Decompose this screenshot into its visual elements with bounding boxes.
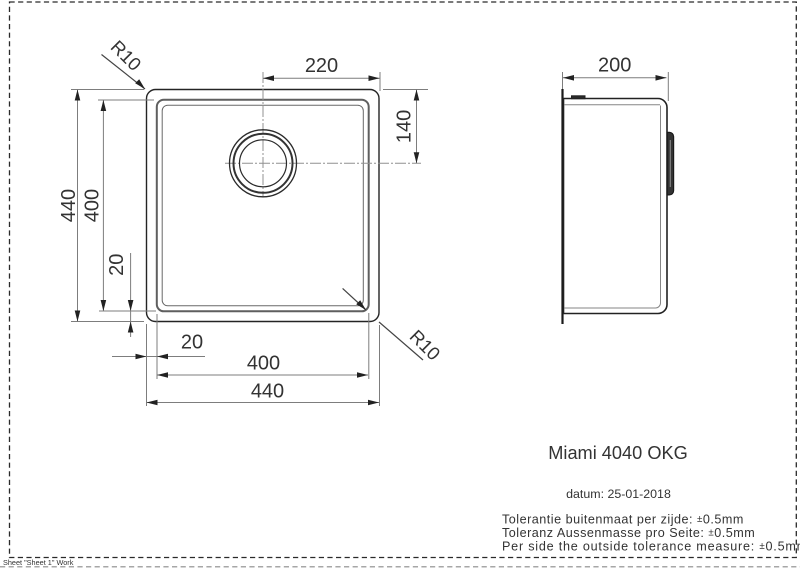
svg-text:400: 400 bbox=[82, 189, 104, 222]
svg-text:20: 20 bbox=[181, 332, 203, 354]
svg-text:440: 440 bbox=[251, 381, 284, 403]
svg-text:220: 220 bbox=[305, 55, 338, 77]
svg-text:400: 400 bbox=[247, 353, 280, 375]
svg-text:Miami 4040 OKG: Miami 4040 OKG bbox=[548, 443, 688, 463]
svg-text:440: 440 bbox=[58, 189, 80, 222]
svg-text:datum: 25-01-2018: datum: 25-01-2018 bbox=[566, 487, 671, 501]
svg-text:Toleranz Aussenmasse pro Seite: Toleranz Aussenmasse pro Seite: ±0.5mm bbox=[502, 526, 755, 540]
svg-text:20: 20 bbox=[106, 254, 128, 276]
svg-text:Tolerantie buitenmaat per zijd: Tolerantie buitenmaat per zijde: ±0.5mm bbox=[502, 513, 744, 527]
svg-text:140: 140 bbox=[394, 110, 416, 143]
svg-text:Sheet "Sheet 1" Work: Sheet "Sheet 1" Work bbox=[3, 558, 74, 567]
svg-text:200: 200 bbox=[598, 55, 631, 77]
svg-text:Per side the outside tolerance: Per side the outside tolerance measure: … bbox=[502, 540, 800, 554]
